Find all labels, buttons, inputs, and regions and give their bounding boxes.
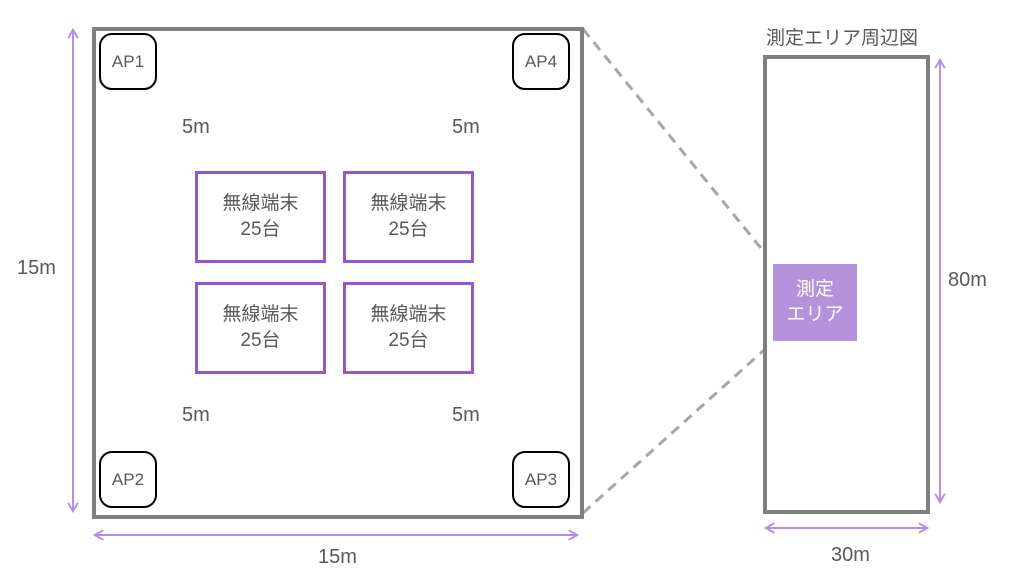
access-point-ap3: AP3 xyxy=(512,451,570,508)
terminal-group-count: 25台 xyxy=(388,217,428,243)
access-point-ap1: AP1 xyxy=(99,33,157,90)
terminal-group-top-right: 無線端末 25台 xyxy=(343,171,474,263)
measurement-area-box: 測定 エリア xyxy=(773,264,857,341)
zoom-connector-bottom xyxy=(583,342,773,513)
distance-label-ap4: 5m xyxy=(452,116,480,139)
access-point-ap4: AP4 xyxy=(512,33,570,90)
overview-width-label: 30m xyxy=(831,544,870,567)
access-point-ap2: AP2 xyxy=(99,451,157,508)
zoom-connector-top xyxy=(583,29,773,263)
measurement-room-outline xyxy=(92,27,584,519)
measurement-setup-diagram: AP1 AP4 AP2 AP3 無線端末 25台 無線端末 25台 無線端末 2… xyxy=(0,0,1014,587)
terminal-group-bottom-right: 無線端末 25台 xyxy=(343,282,474,374)
ap3-label: AP3 xyxy=(525,470,557,490)
terminal-group-name: 無線端末 xyxy=(370,302,446,328)
terminal-group-name: 無線端末 xyxy=(222,302,298,328)
detail-height-label: 15m xyxy=(17,257,56,280)
detail-width-label: 15m xyxy=(318,546,357,569)
terminal-group-bottom-left: 無線端末 25台 xyxy=(195,282,326,374)
overview-title: 測定エリア周辺図 xyxy=(766,23,918,50)
ap4-label: AP4 xyxy=(525,52,557,72)
distance-label-ap3: 5m xyxy=(452,404,480,427)
terminal-group-top-left: 無線端末 25台 xyxy=(195,171,326,263)
measurement-area-label-line2: エリア xyxy=(786,303,843,328)
terminal-group-count: 25台 xyxy=(240,328,280,354)
overview-height-label: 80m xyxy=(948,269,987,292)
measurement-area-label-line1: 測定 xyxy=(796,278,834,303)
distance-label-ap2: 5m xyxy=(182,404,210,427)
terminal-group-count: 25台 xyxy=(240,217,280,243)
ap1-label: AP1 xyxy=(112,52,144,72)
terminal-group-count: 25台 xyxy=(388,328,428,354)
terminal-group-name: 無線端末 xyxy=(222,191,298,217)
distance-label-ap1: 5m xyxy=(182,116,210,139)
ap2-label: AP2 xyxy=(112,470,144,490)
terminal-group-name: 無線端末 xyxy=(370,191,446,217)
